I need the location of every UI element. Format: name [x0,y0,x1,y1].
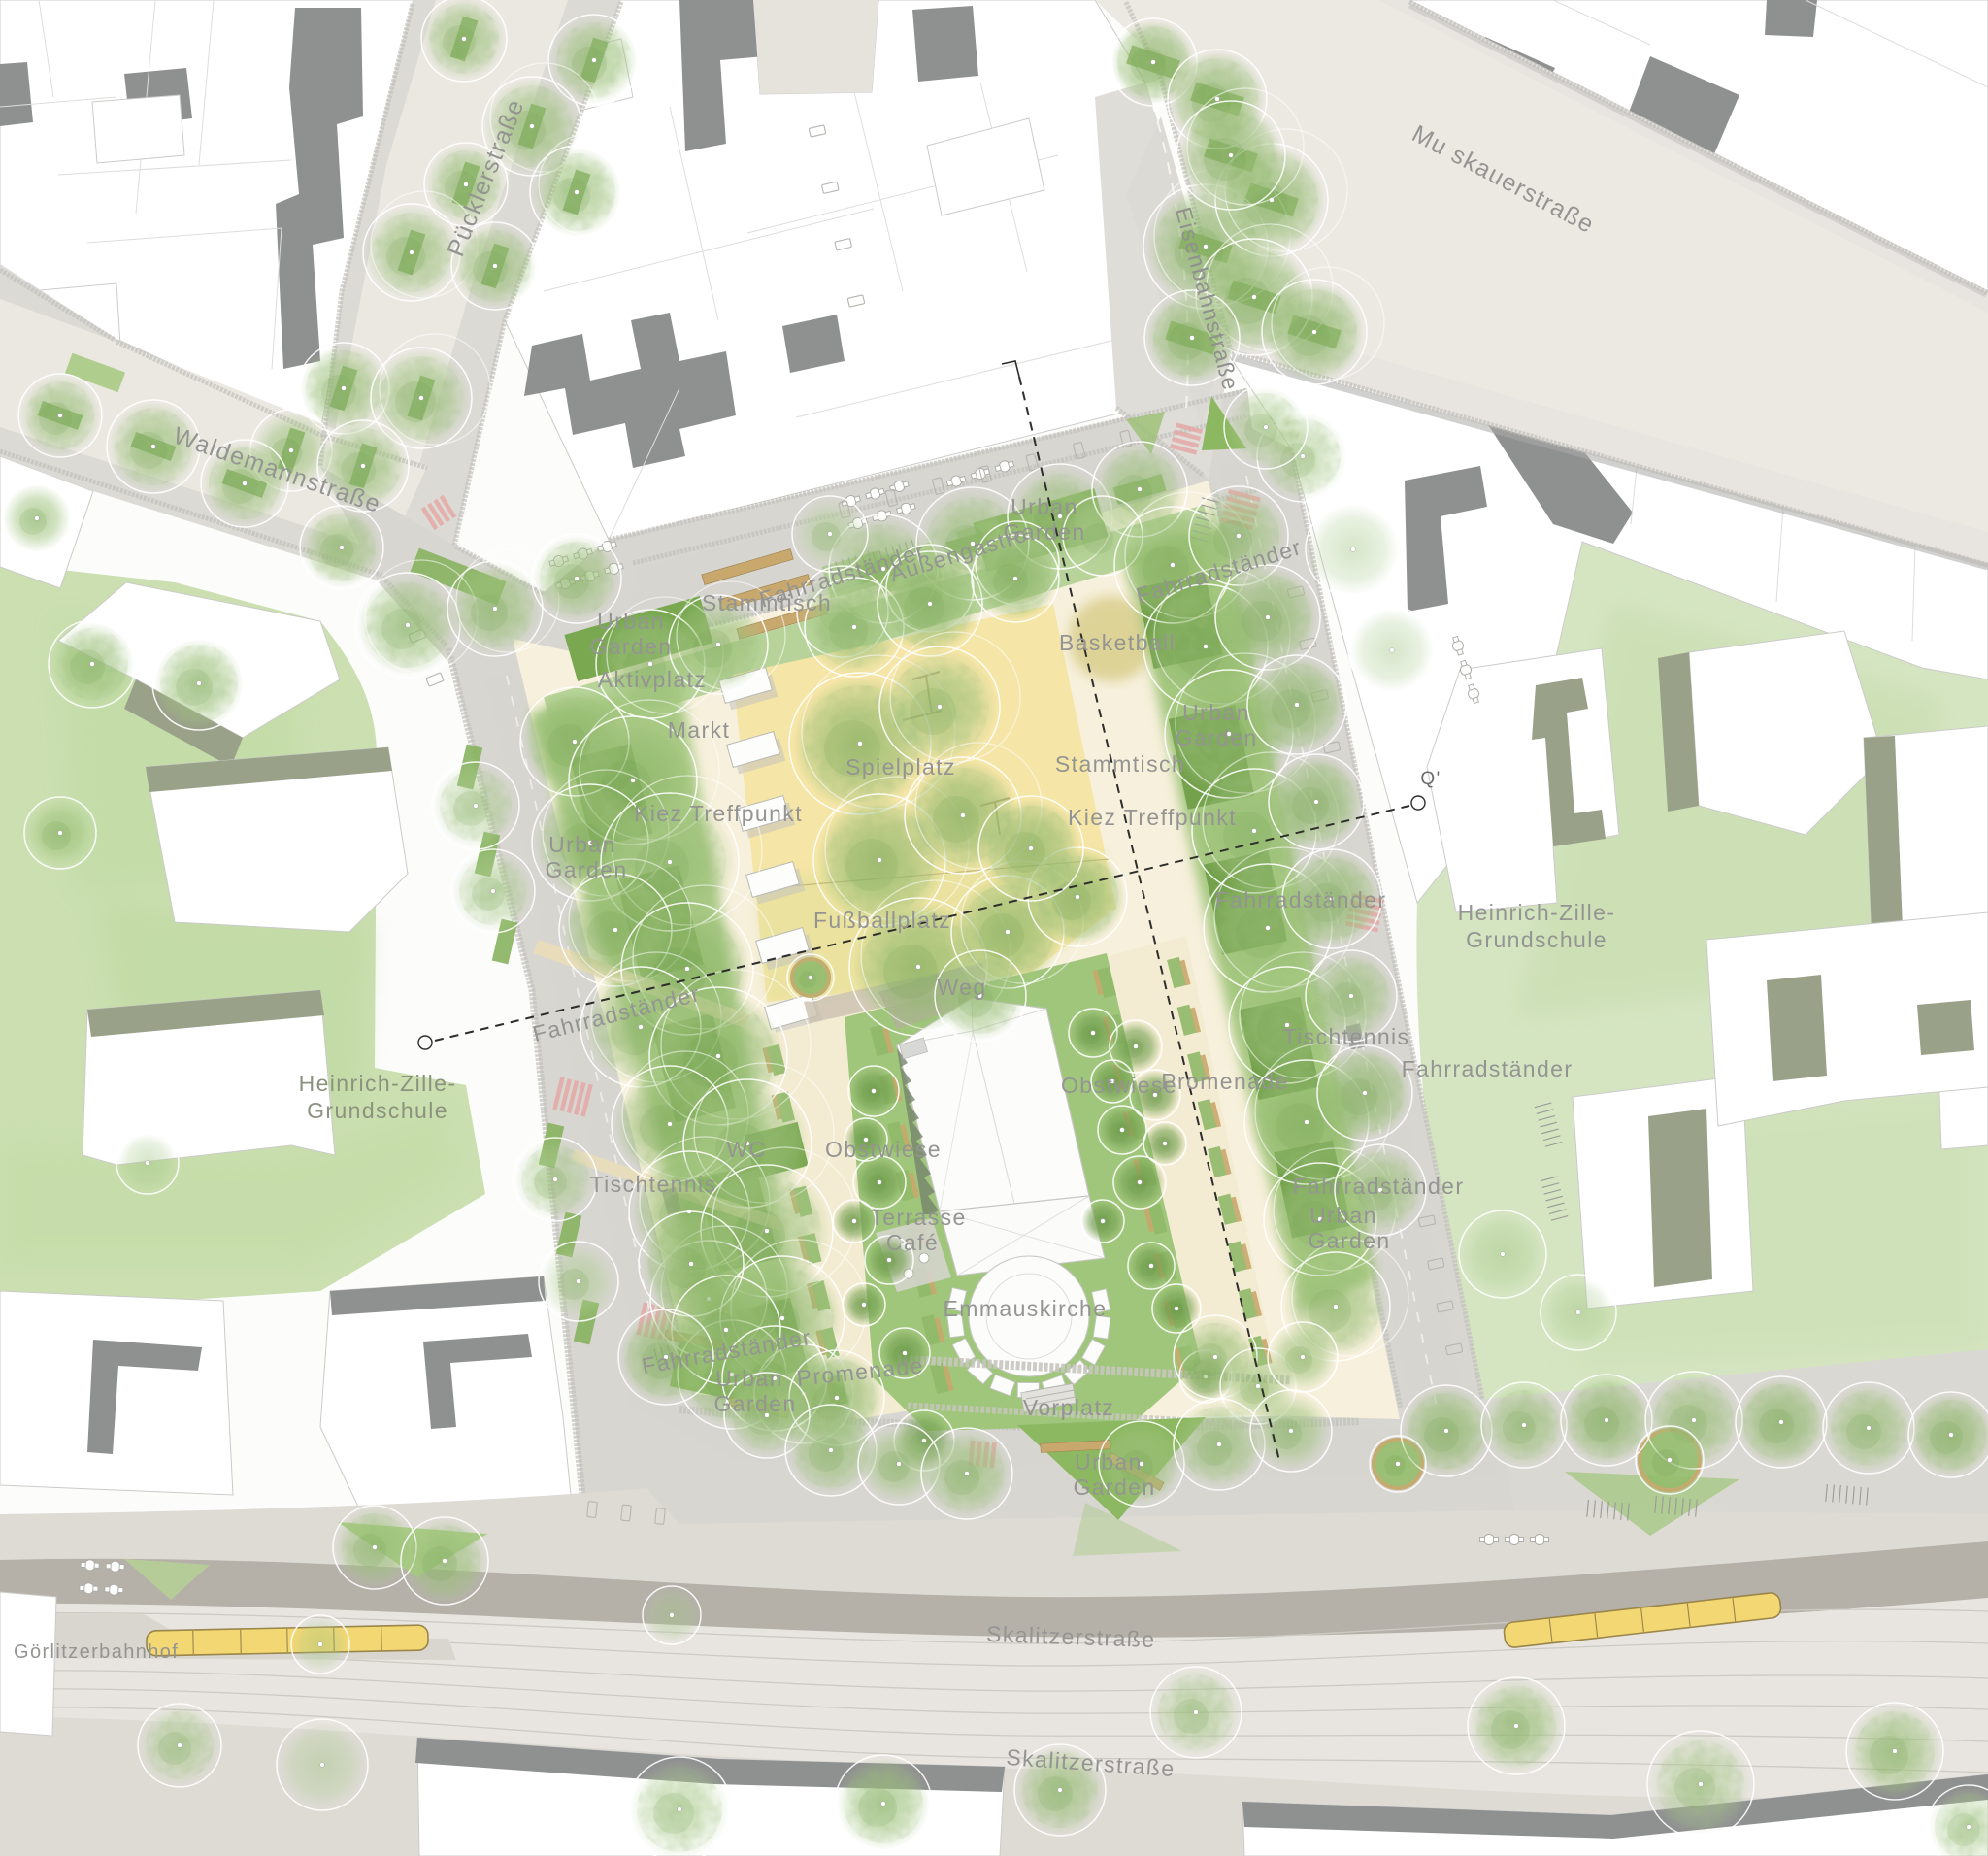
svg-text:Urban: Urban [1182,700,1250,725]
svg-text:Urban: Urban [1011,494,1078,519]
svg-text:Obstwiese: Obstwiese [825,1137,942,1162]
svg-text:Basketball: Basketball [1059,630,1176,655]
svg-text:Fahrradständer: Fahrradständer [1215,887,1387,912]
svg-text:Aktivplatz: Aktivplatz [598,667,707,692]
svg-text:WC: WC [726,1137,766,1162]
svg-text:Fußballplatz: Fußballplatz [813,908,951,933]
svg-text:Kiez Treffpunkt: Kiez Treffpunkt [634,801,803,826]
svg-text:Q': Q' [1420,769,1441,789]
svg-text:Café: Café [886,1230,939,1255]
svg-text:Tischtennis: Tischtennis [590,1172,717,1197]
svg-text:Urban: Urban [715,1366,783,1391]
svg-text:Obstwiese: Obstwiese [1061,1073,1177,1098]
svg-text:Garden: Garden [1003,519,1085,545]
svg-text:Emmauskirche: Emmauskirche [944,1296,1108,1321]
svg-text:Vorplatz: Vorplatz [1023,1395,1114,1420]
svg-text:Urban: Urban [1309,1203,1377,1228]
svg-text:Urban: Urban [597,609,665,634]
svg-text:Markt: Markt [668,717,731,743]
svg-text:Weg: Weg [937,975,986,1000]
svg-text:Görlitzerbahnhof: Görlitzerbahnhof [14,1641,179,1663]
svg-text:Garden: Garden [545,857,627,882]
svg-text:Urban: Urban [548,832,616,857]
svg-text:Garden: Garden [589,634,672,659]
svg-text:Heinrich-Zille-: Heinrich-Zille- [1458,900,1616,925]
svg-text:Fahrradständer: Fahrradständer [1402,1056,1574,1081]
svg-text:Kiez Treffpunkt: Kiez Treffpunkt [1068,805,1237,830]
svg-text:Garden: Garden [1308,1228,1390,1253]
svg-text:Grundschule: Grundschule [307,1098,448,1123]
svg-text:Garden: Garden [1073,1475,1155,1500]
svg-text:Heinrich-Zille-: Heinrich-Zille- [299,1071,457,1096]
svg-text:Fahrradständer: Fahrradständer [1293,1174,1465,1199]
svg-text:Urban: Urban [1075,1449,1143,1475]
svg-text:Garden: Garden [1175,725,1257,750]
svg-text:Terrasse: Terrasse [870,1205,966,1230]
svg-text:Garden: Garden [713,1391,796,1416]
svg-text:Tischtennis: Tischtennis [1283,1024,1410,1049]
svg-text:Stammtisch: Stammtisch [1055,751,1185,777]
svg-text:Spielplatz: Spielplatz [845,754,956,779]
svg-text:Promenade: Promenade [1161,1069,1289,1094]
svg-text:Grundschule: Grundschule [1466,927,1607,952]
